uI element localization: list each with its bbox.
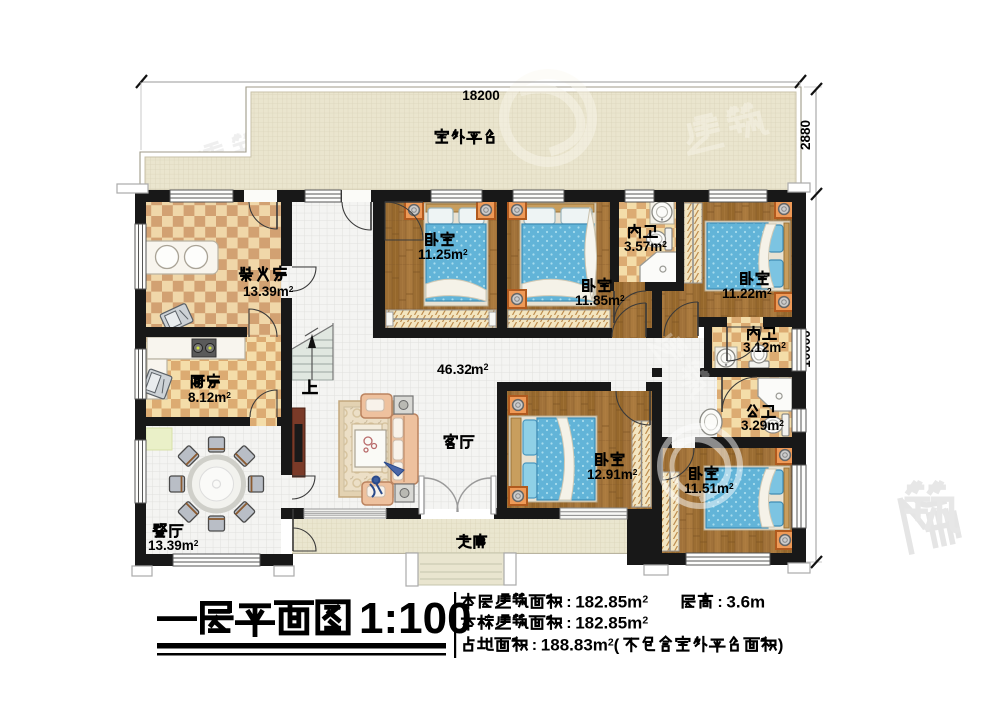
svg-text::: :: [566, 615, 571, 632]
svg-text:182.85m2: 182.85m2: [575, 614, 648, 633]
svg-text:46.32: 46.32: [437, 361, 472, 377]
svg-text:11.25m2: 11.25m2: [418, 247, 468, 262]
svg-text:11.85m2: 11.85m2: [575, 293, 625, 308]
svg-text:3.57m2: 3.57m2: [624, 239, 667, 254]
svg-text:3.12m2: 3.12m2: [743, 340, 786, 355]
svg-text:18200: 18200: [462, 88, 500, 103]
svg-text:(: (: [614, 636, 620, 655]
svg-text:3.29m2: 3.29m2: [741, 418, 784, 433]
svg-text:182.85m2: 182.85m2: [575, 593, 648, 612]
svg-text:12.91m2: 12.91m2: [587, 467, 638, 482]
svg-text:11.51m2: 11.51m2: [684, 481, 734, 496]
svg-text:11.22m2: 11.22m2: [722, 286, 772, 301]
svg-text:3.6m: 3.6m: [726, 593, 765, 612]
svg-text:13.39m2: 13.39m2: [148, 538, 199, 553]
svg-text::: :: [566, 594, 571, 611]
svg-text:188.83m2: 188.83m2: [541, 636, 614, 655]
svg-text:2880: 2880: [798, 120, 813, 150]
svg-text:): ): [778, 636, 784, 655]
svg-text::: :: [717, 594, 722, 611]
svg-text::: :: [532, 637, 537, 654]
svg-text:8.12m2: 8.12m2: [188, 390, 231, 405]
svg-text:13.39m2: 13.39m2: [243, 284, 294, 299]
